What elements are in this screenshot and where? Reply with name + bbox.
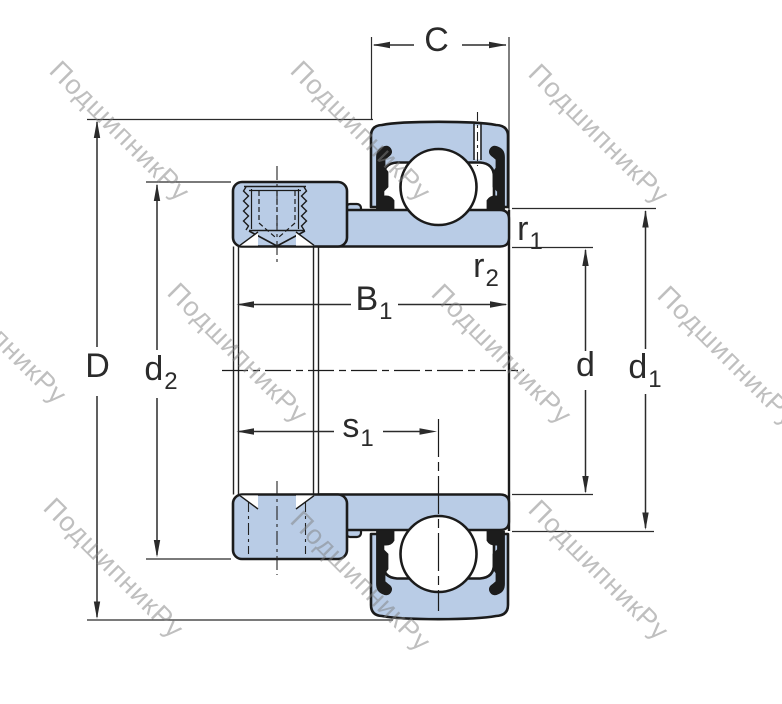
locking-collar-bottom (233, 481, 347, 575)
dim-label-r2: r2 (473, 249, 499, 291)
dim-label-B1: B1 (355, 282, 392, 324)
dim-label-r1: r1 (517, 212, 543, 254)
drawing-geometry (0, 0, 782, 704)
bearing-cross-section-drawing: C D d2 B1 s1 r1 r2 d d1 ПодшипникРу Подш… (0, 0, 782, 704)
lubrication-hole (474, 112, 481, 166)
dim-label-D: D (85, 349, 111, 391)
locking-collar-top (233, 166, 347, 262)
dim-s1 (237, 428, 438, 434)
ball-top (401, 149, 477, 225)
dimension-lines (87, 37, 656, 620)
dim-label-s1: s1 (342, 409, 373, 451)
dim-label-d: d (576, 348, 596, 390)
dim-label-C: C (424, 23, 450, 65)
dim-label-d2: d2 (144, 352, 177, 394)
dim-label-d1: d1 (628, 350, 661, 392)
